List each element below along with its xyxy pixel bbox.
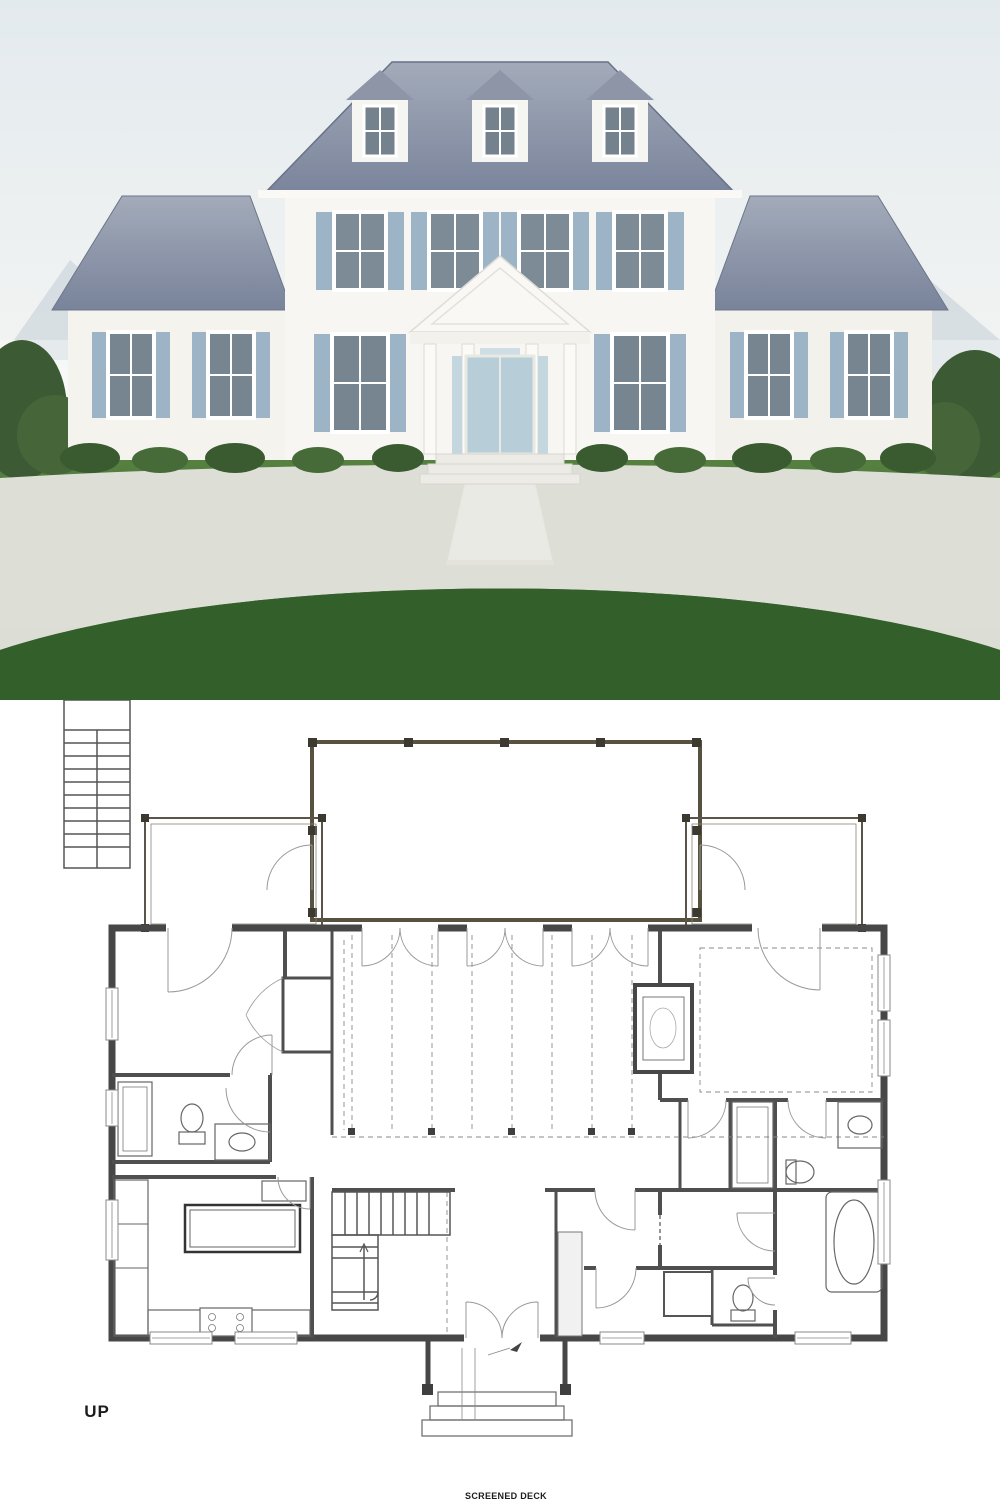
exterior-doors xyxy=(166,922,822,1344)
dashed-lines xyxy=(332,935,884,1336)
bench-lockers xyxy=(558,1232,582,1336)
fireplace xyxy=(635,985,692,1072)
exterior-stairs xyxy=(64,700,130,868)
custom-island-box xyxy=(185,1205,300,1252)
kitchen-fixtures xyxy=(114,1180,310,1336)
interior-doors xyxy=(226,978,826,1308)
deck-posts xyxy=(308,738,701,917)
cornice xyxy=(258,190,742,198)
main-floor-plan: UP SCREENED DECK29'-9" X 13'-8"407 SQ FT… xyxy=(0,700,1000,1500)
porch-step xyxy=(420,474,580,484)
porch xyxy=(422,1341,572,1436)
room-label-screened-deck: SCREENED DECK29'-9" X 13'-8"407 SQ FT10'… xyxy=(465,1491,547,1500)
pin-image: UP SCREENED DECK29'-9" X 13'-8"407 SQ FT… xyxy=(0,0,1000,1500)
washer-dryer-box xyxy=(664,1272,712,1316)
house-exterior-render xyxy=(0,0,1000,700)
dormers xyxy=(346,70,654,162)
bath-left-fixtures xyxy=(118,1082,270,1160)
up-label-exterior: UP xyxy=(84,1402,110,1422)
open-deck-left-outline xyxy=(145,818,322,930)
floor-plan-drawing xyxy=(0,700,1000,1500)
decks xyxy=(141,738,866,932)
sidelight-left xyxy=(452,356,462,454)
kitchen-closet xyxy=(262,1181,306,1201)
bath-right-fixtures xyxy=(731,1102,882,1321)
sidelight-right xyxy=(538,356,548,454)
tray-ceiling xyxy=(700,948,872,1092)
beam-columns xyxy=(348,1128,635,1135)
open-deck-right-outline xyxy=(686,818,862,930)
porch-step xyxy=(436,454,564,464)
screened-deck-outline xyxy=(312,742,700,920)
porch-step xyxy=(428,464,572,474)
interior-stairs xyxy=(332,1192,450,1310)
